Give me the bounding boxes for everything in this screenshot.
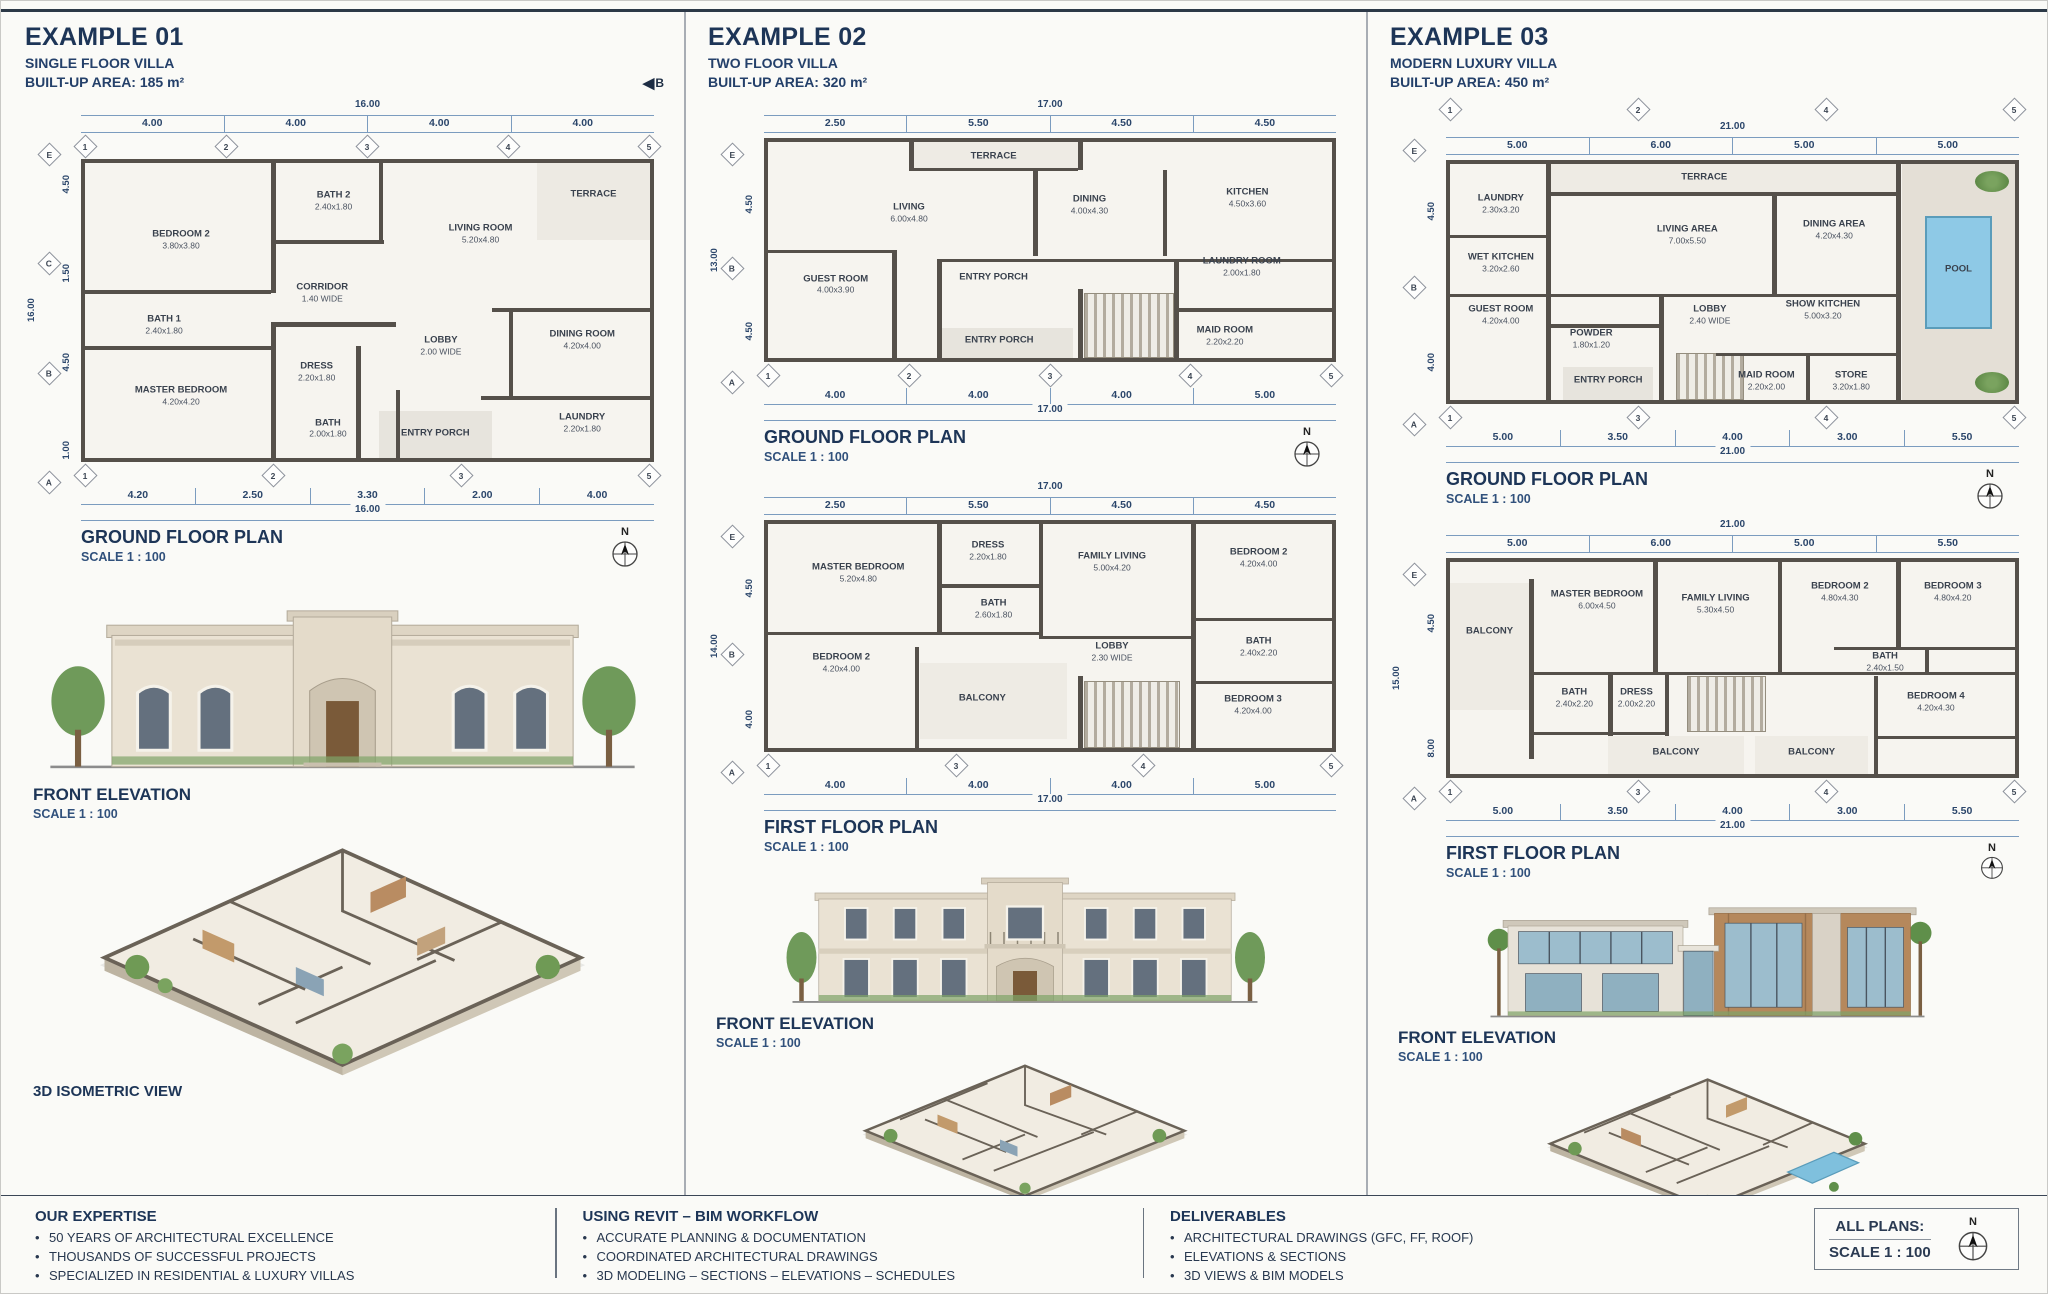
wall-segment [271,322,276,458]
wall-segment [1529,672,2015,675]
wall-segment [1546,192,1896,196]
wall-segment [509,308,514,399]
room-label: BATH 12.40x1.80 [145,315,182,336]
example-title: EXAMPLE 02 [708,23,1342,52]
wall-segment [271,163,276,293]
north-compass: N [1956,1217,1990,1262]
room-label: POOL [1945,265,1972,276]
footer-bullet: ACCURATE PLANNING & DOCUMENTATION [583,1230,1143,1245]
room-label: TERRACE [971,152,1017,163]
ground-floor-plan-ex01: 16.00 ECBA 4.501.504.501.00 ◀ B 16.00 [25,100,660,568]
footer-bullet: COORDINATED ARCHITECTURAL DRAWINGS [583,1249,1143,1264]
wall-segment [1874,736,2015,739]
footer: OUR EXPERTISE 50 YEARS OF ARCHITECTURAL … [1,1195,2047,1293]
grid-bubble: 4 [1132,753,1156,777]
left-total-dim: 14.00 [708,482,721,811]
wall-segment [1546,164,1551,400]
grid-bubbles-bottom: 1235 [75,464,660,486]
room-label: FAMILY LIVING5.00x4.20 [1078,552,1146,573]
wall-segment [1039,636,1191,639]
grid-bubble: A [1402,412,1426,436]
grid-bubble: 2 [261,463,285,487]
example-02-header: EXAMPLE 02 TWO FLOOR VILLA BUILT-UP AREA… [708,23,1342,90]
footer-divider [1143,1208,1145,1278]
ground-floor-plan-ex02: 13.00 EBA 4.504.50 17.00 2.505.504.504.5… [708,100,1342,468]
wall-segment [396,390,401,458]
grid-bubble: 3 [1626,405,1650,429]
room-label: FAMILY LIVING5.30x4.50 [1681,594,1749,615]
room-label: MASTER BEDROOM5.20x4.80 [812,563,904,584]
iso-caption: 3D ISOMETRIC VIEW [33,1083,660,1100]
room-label: ENTRY PORCH [401,429,470,440]
first-floor-plan-ex03: 15.00 EA 4.508.00 21.00 5.006.005.005.50 [1390,520,2025,880]
grid-bubble: E [720,524,744,548]
wall-segment [892,250,897,358]
footer-expertise: OUR EXPERTISE 50 YEARS OF ARCHITECTURAL … [35,1208,555,1287]
example-subtitle: MODERN LUXURY VILLA [1390,55,2025,71]
room-label: WET KITCHEN3.20x2.60 [1468,253,1534,274]
example-area: BUILT-UP AREA: 185 m² [25,74,660,90]
wall-segment [1078,676,1083,748]
room-label: BEDROOM 23.80x3.80 [152,229,210,250]
wall-segment [937,584,1039,587]
room-label: ENTRY PORCH [1574,376,1643,387]
room-label: BALCONY [959,693,1006,704]
room-label: TERRACE [1681,173,1727,184]
floor-plan-canvas: MASTER BEDROOM5.20x4.80 DRESS2.20x1.80 B… [764,520,1336,752]
footer-deliverables: DELIVERABLES ARCHITECTURAL DRAWINGS (GFC… [1170,1208,1650,1287]
wall-segment [1806,353,1811,400]
grid-bubble: 1 [1438,97,1462,121]
room-label: DRESS2.20x1.80 [298,362,335,383]
plan-caption: GROUND FLOOR PLAN SCALE 1 : 100 [81,527,283,564]
room-label: BATH2.40x1.50 [1866,651,1903,672]
wall-segment [1163,170,1168,256]
wall-segment [492,308,650,312]
wall-segment [1191,524,1196,618]
wall-segment [937,259,942,358]
scale-box-title: ALL PLANS: [1829,1218,1931,1240]
wall-segment [481,396,651,400]
room-label: BATH2.40x2.20 [1556,687,1593,708]
wall-segment [937,524,942,632]
wall-segment [909,168,1078,171]
room-label: CORRIDOR1.40 WIDE [296,282,348,303]
plan-area-fill [537,163,650,240]
wall-segment [1608,672,1613,736]
wall-segment [1450,235,1546,239]
room-label: MASTER BEDROOM4.20x4.20 [135,386,227,407]
wall-segment [271,240,384,244]
grid-bubble: A [1402,786,1426,810]
grid-bubble: 1 [756,753,780,777]
plan-area-fill [1084,681,1180,748]
plan-caption: FIRST FLOOR PLAN SCALE 1 : 100 [764,817,938,854]
footer-bullet: 50 YEARS OF ARCHITECTURAL EXCELLENCE [35,1230,555,1245]
plan-caption: FIRST FLOOR PLAN SCALE 1 : 100 [1446,843,1620,880]
wall-segment [1896,164,1901,400]
room-label: ENTRY PORCH [959,273,1028,284]
wall-segment [1778,562,1783,672]
top-border-rule [1,9,2047,12]
room-label: TERRACE [571,190,617,201]
room-label: LAUNDRY ROOM2.00x1.80 [1203,257,1281,278]
room-label: DINING AREA4.20x4.30 [1803,220,1865,241]
room-label: DINING4.00x4.30 [1071,194,1108,215]
dim-total-top: 16.00 [81,100,654,116]
grid-bubble: 2 [1626,97,1650,121]
front-elevation-ex01 [25,576,660,781]
example-title: EXAMPLE 03 [1390,23,2025,52]
wall-segment [1874,676,1879,774]
grid-bubble: 2 [897,363,921,387]
compass-icon [1975,480,2005,510]
wall-segment [768,250,892,253]
footer-bullet: THOUSANDS OF SUCCESSFUL PROJECTS [35,1249,555,1264]
dim-total-bottom: 16.00 [81,505,654,521]
room-label: LIVING6.00x4.80 [890,203,927,224]
room-label: MASTER BEDROOM6.00x4.50 [1551,590,1643,611]
presentation-sheet: EXAMPLE 01 SINGLE FLOOR VILLA BUILT-UP A… [0,0,2048,1294]
example-area: BUILT-UP AREA: 450 m² [1390,74,2025,90]
grid-bubble: 3 [1038,363,1062,387]
example-01-header: EXAMPLE 01 SINGLE FLOOR VILLA BUILT-UP A… [25,23,660,90]
compass-icon [1979,854,2005,880]
front-elevation-ex03 [1390,884,2025,1024]
wall-segment [1659,294,1664,400]
room-label: ENTRY PORCH [965,335,1034,346]
room-label: BATH2.60x1.80 [975,599,1012,620]
grid-bubble: 5 [1319,753,1343,777]
section-marker-icon: ◀ [643,74,655,92]
grid-bubble: 5 [2002,779,2026,803]
section-marker: ◀ B [643,74,664,92]
plan-area-fill [1687,676,1766,731]
floor-plan-canvas: BALCONY MASTER BEDROOM6.00x4.50 FAMILY L… [1446,558,2019,778]
room-label: BALCONY [1653,747,1700,758]
isometric-view-ex01 [25,827,660,1079]
footer-bullet: ELEVATIONS & SECTIONS [1170,1249,1650,1264]
footer-bullet: ARCHITECTURAL DRAWINGS (GFC, FF, ROOF) [1170,1230,1650,1245]
wall-segment [1450,294,1546,298]
example-title: EXAMPLE 01 [25,23,660,52]
compass-icon [610,538,640,568]
grid-bubble: E [1402,562,1426,586]
left-dims: 4.501.504.501.00 [60,100,73,521]
front-elevation-ex02 [708,860,1342,1010]
room-label: GUEST ROOM4.20x4.00 [1468,305,1533,326]
wall-segment [1033,170,1038,256]
room-label: BATH2.40x2.20 [1240,637,1277,658]
room-label: BATH 22.40x1.80 [315,191,352,212]
wall-segment [85,290,271,294]
footer-bullet: 3D VIEWS & BIM MODELS [1170,1268,1650,1283]
wall-segment [1896,562,1901,647]
wall-segment [1191,681,1332,684]
dim-row-bottom: 4.202.503.302.004.00 [81,488,654,505]
wall-segment [1772,195,1777,294]
grid-bubble: 3 [355,134,379,158]
wall-segment [1653,562,1658,672]
compass-icon [1292,438,1322,468]
dim-total-top: 17.00 [764,100,1336,116]
plan-area-fill [1676,353,1744,400]
room-label: LIVING ROOM5.20x4.80 [449,223,513,244]
room-label: POWDER1.80x1.20 [1570,328,1613,349]
left-grid-bubbles: ECBA [38,100,60,521]
grid-bubble: 3 [1626,779,1650,803]
grid-bubble: 1 [1438,405,1462,429]
wall-segment [356,346,361,458]
elevation-caption: FRONT ELEVATION SCALE 1 : 100 [716,1014,1336,1050]
grid-bubble: B [1402,275,1426,299]
room-label: LIVING AREA7.00x5.50 [1657,224,1718,245]
room-label: BEDROOM 24.80x4.30 [1811,581,1869,602]
left-total-dim: 15.00 [1390,520,1403,837]
room-label: BEDROOM 44.20x4.30 [1907,691,1965,712]
dim-total-top: 17.00 [764,482,1336,498]
grid-bubble: A [720,760,744,784]
grid-bubble: 1 [73,463,97,487]
wall-segment [271,322,395,326]
room-label: DINING ROOM4.20x4.00 [549,330,614,351]
grid-bubble: 4 [1814,779,1838,803]
room-label: LOBBY2.40 WIDE [1689,305,1730,326]
wall-segment [85,346,271,350]
left-total-dim [1390,96,1403,463]
room-label: BALCONY [1466,626,1513,637]
grid-bubble: 4 [1814,405,1838,429]
first-floor-plan-ex02: 14.00 EBA 4.504.00 17.00 2.505.504.504.5… [708,482,1342,854]
grid-bubble: 5 [637,134,661,158]
footer-bullet: SPECIALIZED IN RESIDENTIAL & LUXURY VILL… [35,1268,555,1283]
plan-caption: GROUND FLOOR PLAN SCALE 1 : 100 [1446,469,1648,506]
scale-box: ALL PLANS: SCALE 1 : 100 N [1814,1208,2019,1270]
left-total-dim: 16.00 [25,100,38,521]
dim-total-bottom: 21.00 [1446,821,2019,837]
room-label: LAUNDRY2.30x3.20 [1478,194,1524,215]
grid-bubbles-top: 12345 [75,135,660,157]
grid-bubble: 2 [214,134,238,158]
grid-bubble: 1 [1438,779,1462,803]
plan-area-fill [1975,372,2009,393]
isometric-view-ex03 [1390,1066,2025,1197]
wall-segment [1191,618,1332,621]
grid-bubble: 5 [2002,405,2026,429]
grid-bubble: A [37,470,61,494]
wall-segment [1039,524,1044,636]
example-03-header: EXAMPLE 03 MODERN LUXURY VILLA BUILT-UP … [1390,23,2025,90]
room-label: GUEST ROOM4.00x3.90 [803,274,868,295]
dim-row-top: 4.004.004.004.00 [81,116,654,133]
room-label: LAUNDRY2.20x1.80 [559,412,605,433]
wall-segment [768,632,937,635]
compass-icon [1956,1228,1990,1262]
example-02-column: EXAMPLE 02 TWO FLOOR VILLA BUILT-UP AREA… [684,15,1366,1197]
room-label: LOBBY2.30 WIDE [1091,641,1132,662]
room-label: KITCHEN4.50x3.60 [1226,188,1268,209]
room-label: BEDROOM 24.20x4.00 [1230,547,1288,568]
room-label: DRESS2.20x1.80 [969,540,1006,561]
wall-segment [909,142,914,170]
north-compass: N [1979,843,2005,880]
grid-bubble: B [720,256,744,280]
dim-total-bottom: 21.00 [1446,447,2019,463]
example-subtitle: TWO FLOOR VILLA [708,55,1342,71]
grid-bubble: 3 [449,463,473,487]
dim-total-bottom: 17.00 [764,795,1336,811]
floor-plan-canvas: BEDROOM 23.80x3.80 BATH 22.40x1.80 LIVIN… [81,159,654,462]
wall-segment [1529,732,1665,735]
grid-bubble: 4 [496,134,520,158]
grid-bubble: A [720,370,744,394]
example-01-column: EXAMPLE 01 SINGLE FLOOR VILLA BUILT-UP A… [1,15,684,1197]
grid-bubble: 1 [73,134,97,158]
left-total-dim: 13.00 [708,100,721,421]
floor-plan-canvas: TERRACE LIVING AREA7.00x5.50 DINING AREA… [1446,160,2019,404]
grid-bubble: E [37,142,61,166]
grid-bubble: 5 [637,463,661,487]
grid-bubble: 1 [756,363,780,387]
wall-segment [915,647,920,748]
grid-bubble: 4 [1814,97,1838,121]
isometric-view-ex02 [708,1052,1342,1197]
grid-bubble: E [720,142,744,166]
room-label: MAID ROOM2.20x2.20 [1197,326,1253,347]
floor-plan-canvas: TERRACE LIVING6.00x4.80 DINING4.00x4.30 … [764,138,1336,362]
room-label: BATH2.00x1.80 [309,418,346,439]
north-compass: N [610,527,640,568]
wall-segment [1078,289,1083,358]
room-label: DRESS2.00x2.20 [1618,687,1655,708]
wall-segment [379,163,384,243]
example-subtitle: SINGLE FLOOR VILLA [25,55,660,71]
scale-box-value: SCALE 1 : 100 [1829,1240,1931,1261]
footer-bullet: 3D MODELING – SECTIONS – ELEVATIONS – SC… [583,1268,1143,1283]
example-03-column: EXAMPLE 03 MODERN LUXURY VILLA BUILT-UP … [1366,15,2048,1197]
wall-segment [1665,672,1670,736]
room-label: LOBBY2.00 WIDE [420,335,461,356]
room-label: MAID ROOM2.20x2.00 [1738,371,1794,392]
room-label: BEDROOM 34.20x4.00 [1224,695,1282,716]
wall-segment [1925,647,1930,672]
room-label: BEDROOM 24.20x4.00 [813,652,871,673]
elevation-caption: FRONT ELEVATION SCALE 1 : 100 [33,785,654,821]
dim-total-top: 21.00 [1446,122,2019,138]
grid-bubble: B [720,642,744,666]
grid-bubble: 3 [944,753,968,777]
room-label: SHOW KITCHEN5.00x3.20 [1786,300,1860,321]
wall-segment [1078,142,1083,170]
footer-workflow: USING REVIT – BIM WORKFLOW ACCURATE PLAN… [583,1208,1143,1287]
example-area: BUILT-UP AREA: 320 m² [708,74,1342,90]
plan-caption: GROUND FLOOR PLAN SCALE 1 : 100 [764,427,966,464]
grid-bubble: 5 [1319,363,1343,387]
elevation-caption: FRONT ELEVATION SCALE 1 : 100 [1398,1028,2019,1064]
wall-segment [1546,294,1896,298]
plan-area-fill [1450,583,1529,710]
plan-area-fill [1084,293,1174,358]
wall-segment [937,632,1039,635]
footer-divider [555,1208,557,1278]
grid-bubble: 4 [1179,363,1203,387]
ground-floor-plan-ex03: EBA 4.504.00 1245 21.00 5.006.005.005.00 [1390,96,2025,510]
north-compass: N [1975,469,2005,510]
dim-total-top: 21.00 [1446,520,2019,536]
grid-bubble: B [37,361,61,385]
room-label: STORE3.20x1.80 [1832,371,1869,392]
dim-total-bottom: 17.00 [764,405,1336,421]
room-label: BEDROOM 34.80x4.20 [1924,581,1982,602]
grid-bubble: C [37,252,61,276]
grid-bubble: 5 [2002,97,2026,121]
grid-bubble: E [1402,138,1426,162]
room-label: BALCONY [1788,747,1835,758]
wall-segment [1174,308,1332,311]
north-compass: N [1292,427,1322,468]
